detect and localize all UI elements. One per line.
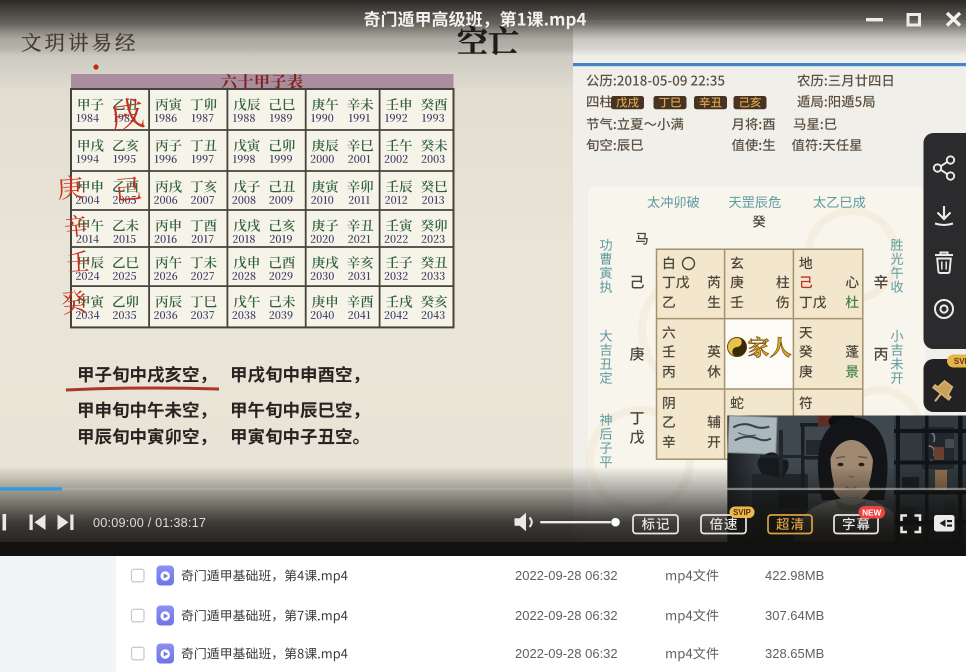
svg-text:SVIP: SVIP: [954, 357, 966, 366]
svg-text:SVIP: SVIP: [733, 508, 751, 517]
svg-text:328.65MB: 328.65MB: [765, 646, 824, 661]
svg-text:307.64MB: 307.64MB: [765, 608, 824, 623]
svg-text:2022-09-28 06:32: 2022-09-28 06:32: [515, 568, 618, 583]
svg-text:2022-09-28 06:32: 2022-09-28 06:32: [515, 608, 618, 623]
svg-text:422.98MB: 422.98MB: [765, 568, 824, 583]
svg-text:00:09:00 / 01:38:17: 00:09:00 / 01:38:17: [93, 516, 206, 530]
svg-text:2022-09-28 06:32: 2022-09-28 06:32: [515, 646, 618, 661]
svg-text:NEW: NEW: [862, 508, 881, 517]
